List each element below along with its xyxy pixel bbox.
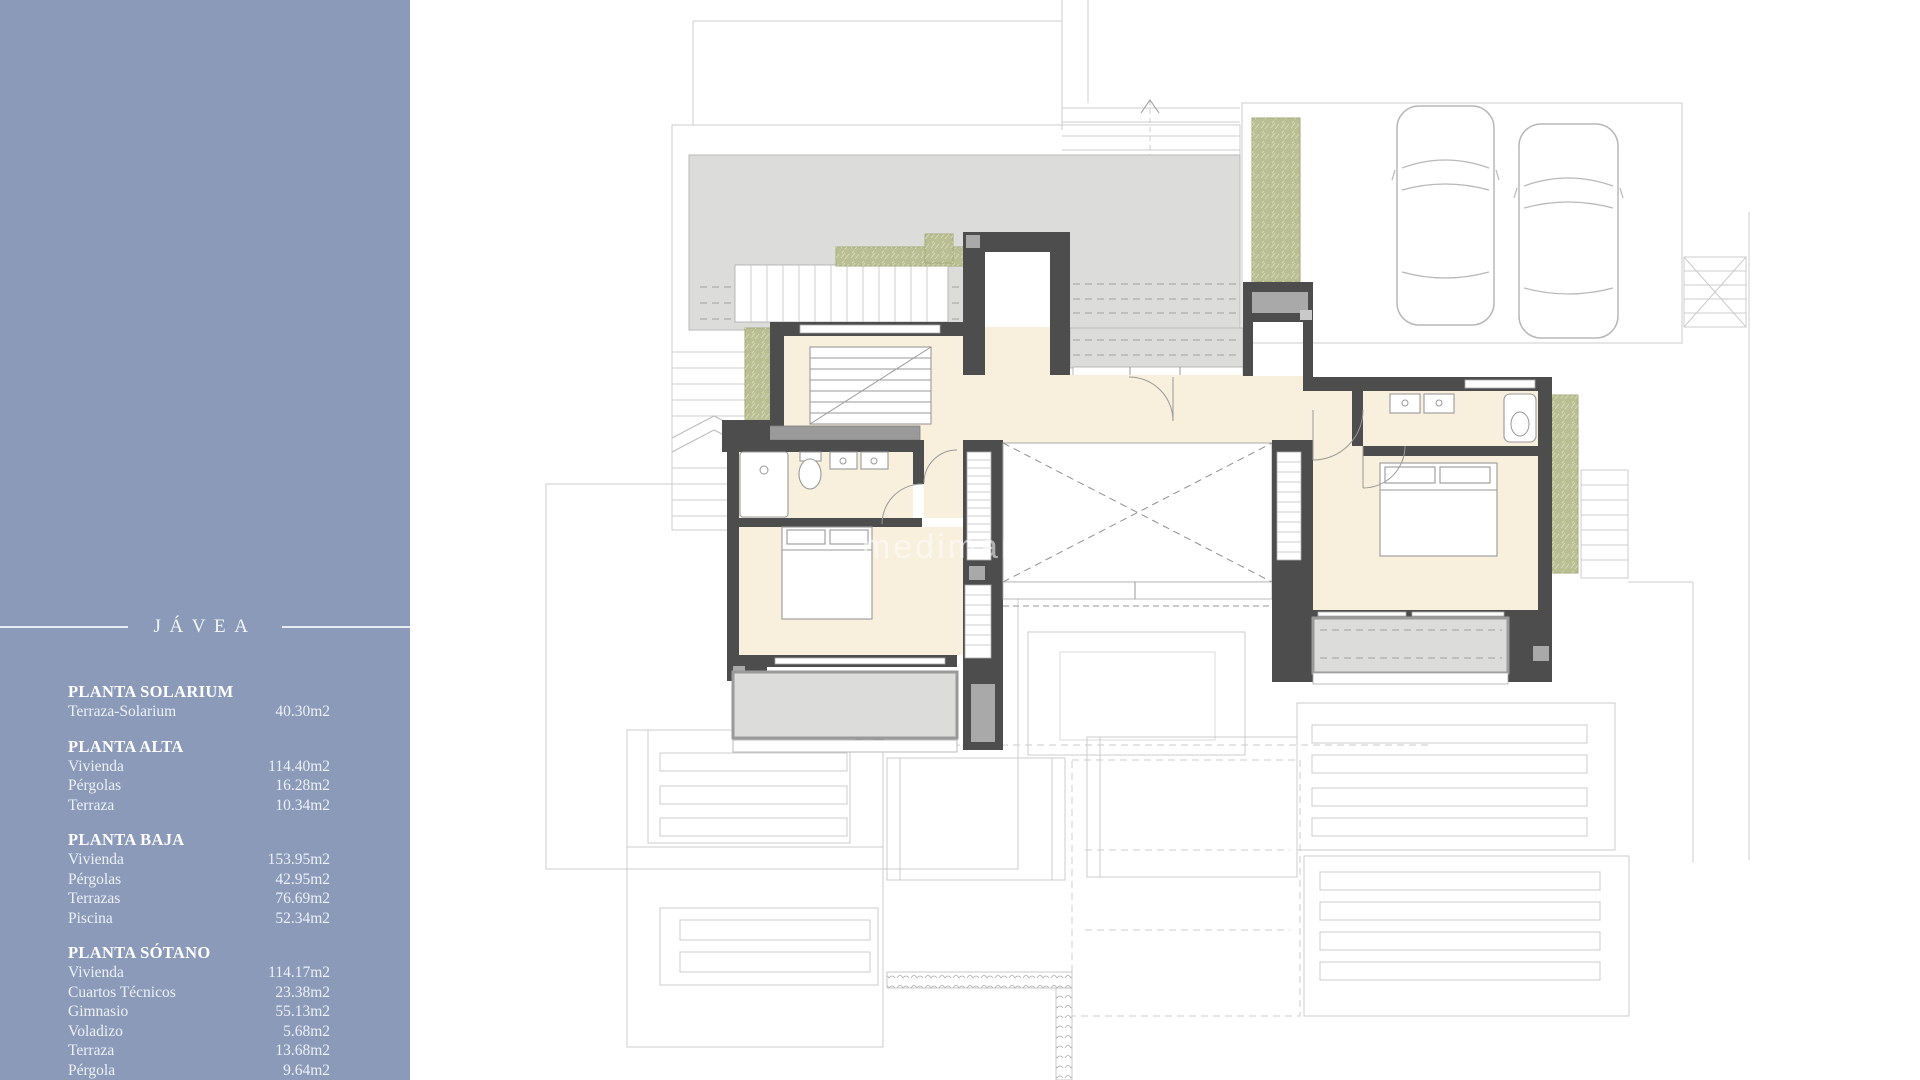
area-label: Pérgolas	[68, 870, 121, 890]
area-list: PLANTA SOLARIUMTerraza-Solarium40.30m2PL…	[68, 682, 330, 1080]
area-row: Gimnasio55.13m2	[68, 1002, 330, 1022]
bed-left	[782, 527, 872, 619]
area-value: 76.69m2	[275, 889, 330, 909]
planter-right	[1552, 395, 1578, 573]
area-value: 40.30m2	[275, 702, 330, 722]
area-label: Pérgola	[68, 1061, 115, 1080]
stair-top-right	[1684, 257, 1746, 327]
page-title: JÁVEA	[154, 616, 257, 638]
area-heading: PLANTA SÓTANO	[68, 943, 330, 963]
planter-horizontal	[836, 247, 981, 266]
area-value: 114.17m2	[268, 963, 330, 983]
area-label: Terrazas	[68, 889, 120, 909]
area-row: Terrazas76.69m2	[68, 889, 330, 909]
area-value: 16.28m2	[275, 776, 330, 796]
area-heading: PLANTA SOLARIUM	[68, 682, 330, 702]
area-row: Terraza-Solarium40.30m2	[68, 702, 330, 722]
area-value: 55.13m2	[275, 1002, 330, 1022]
toilet-left	[799, 452, 821, 489]
pergola-slats-right	[1297, 703, 1629, 1016]
terrace-left	[733, 672, 957, 738]
area-value: 23.38m2	[275, 983, 330, 1003]
sidebar-title-block: JÁVEA	[0, 616, 410, 638]
area-label: Vivienda	[68, 963, 124, 983]
area-row: Pérgola9.64m2	[68, 1061, 330, 1080]
shaft	[963, 232, 1070, 375]
area-value: 10.34m2	[275, 796, 330, 816]
area-section: PLANTA BAJAVivienda153.95m2Pérgolas42.95…	[68, 830, 330, 928]
area-label: Terraza	[68, 796, 114, 816]
area-value: 42.95m2	[275, 870, 330, 890]
corridor-right	[1243, 376, 1313, 443]
area-value: 114.40m2	[268, 757, 330, 777]
area-label: Gimnasio	[68, 1002, 128, 1022]
void-left-column	[963, 440, 1003, 750]
toilet-right	[1504, 394, 1536, 442]
car-2	[1514, 124, 1623, 338]
area-label: Terraza-Solarium	[68, 702, 176, 722]
area-label: Terraza	[68, 1041, 114, 1061]
area-row: Terraza10.34m2	[68, 796, 330, 816]
area-row: Pérgolas16.28m2	[68, 776, 330, 796]
page: medimare ne JÁVEA PLANTA SOLARIUMTerraza…	[0, 0, 1920, 1080]
void	[1003, 443, 1272, 606]
shower-left	[740, 452, 788, 517]
area-row: Cuartos Técnicos23.38m2	[68, 983, 330, 1003]
title-rule-right	[282, 626, 410, 628]
area-heading: PLANTA ALTA	[68, 737, 330, 757]
stair-right	[1581, 470, 1628, 578]
area-value: 5.68m2	[283, 1022, 330, 1042]
area-row: Piscina52.34m2	[68, 909, 330, 929]
area-section: PLANTA SÓTANOVivienda114.17m2Cuartos Téc…	[68, 943, 330, 1080]
terrace-steps	[735, 265, 948, 322]
bed-right	[1380, 463, 1497, 556]
rock-border	[887, 972, 1072, 1080]
planter-shaft	[925, 234, 953, 263]
watermark-suffix: ne	[1082, 528, 1126, 566]
interior-stair	[810, 347, 931, 424]
pool-outline	[887, 758, 1065, 880]
area-row: Voladizo5.68m2	[68, 1022, 330, 1042]
area-label: Pérgolas	[68, 776, 121, 796]
area-label: Vivienda	[68, 850, 124, 870]
pergola-slats-left	[627, 730, 883, 1047]
planter-court	[1252, 118, 1300, 282]
terrace-right	[1313, 618, 1508, 673]
area-row: Vivienda114.17m2	[68, 963, 330, 983]
planter-block	[1243, 282, 1313, 391]
area-label: Vivienda	[68, 757, 124, 777]
cars	[1392, 106, 1623, 338]
sidebar: JÁVEA PLANTA SOLARIUMTerraza-Solarium40.…	[0, 0, 410, 1080]
area-label: Cuartos Técnicos	[68, 983, 176, 1003]
area-row: Pérgolas42.95m2	[68, 870, 330, 890]
area-value: 153.95m2	[268, 850, 330, 870]
title-rule-left	[0, 626, 128, 628]
area-row: Vivienda114.40m2	[68, 757, 330, 777]
area-value: 9.64m2	[283, 1061, 330, 1080]
area-value: 52.34m2	[275, 909, 330, 929]
area-value: 13.68m2	[275, 1041, 330, 1061]
car-1	[1392, 106, 1499, 325]
area-label: Piscina	[68, 909, 113, 929]
area-row: Vivienda153.95m2	[68, 850, 330, 870]
watermark: medimare	[862, 528, 1037, 566]
area-section: PLANTA ALTAVivienda114.40m2Pérgolas16.28…	[68, 737, 330, 816]
area-label: Voladizo	[68, 1022, 123, 1042]
area-section: PLANTA SOLARIUMTerraza-Solarium40.30m2	[68, 682, 330, 722]
area-heading: PLANTA BAJA	[68, 830, 330, 850]
area-row: Terraza13.68m2	[68, 1041, 330, 1061]
